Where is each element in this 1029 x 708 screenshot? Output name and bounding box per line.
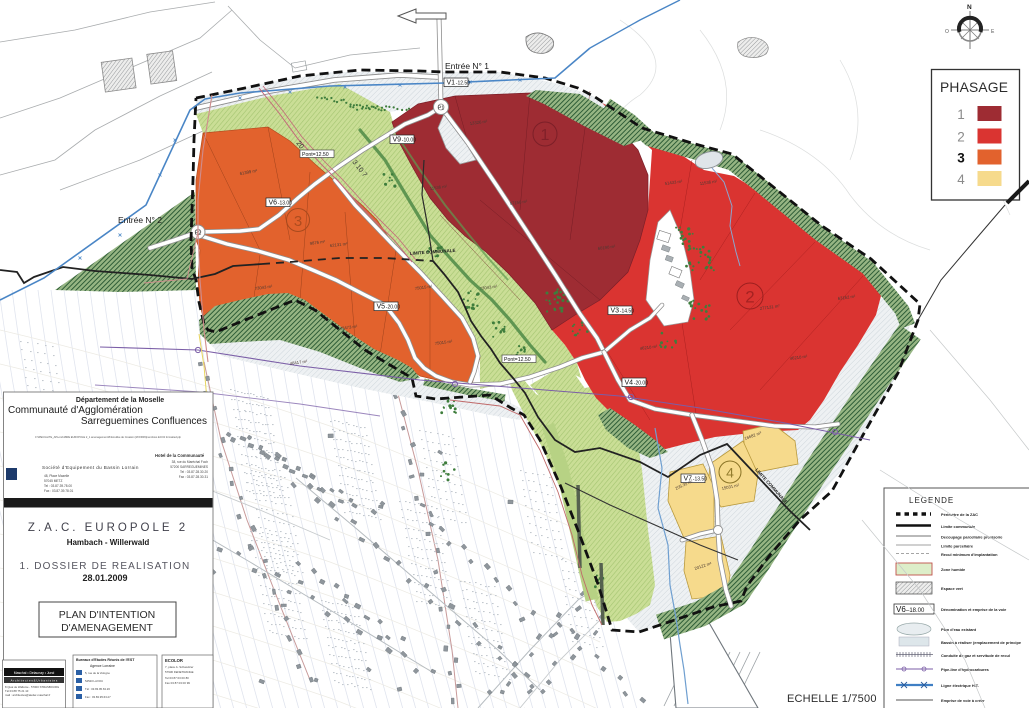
svg-text:Agence Lorraine: Agence Lorraine [90, 664, 115, 668]
svg-text:Entrée N° 1: Entrée N° 1 [445, 61, 489, 71]
svg-text:O: O [945, 29, 949, 35]
svg-text:Emprise de voie à créer: Emprise de voie à créer [941, 698, 985, 703]
svg-text:Fax 03 87 03 00 99: Fax 03 87 03 00 99 [165, 681, 190, 685]
svg-text:Tel 03 87 03 00 80: Tel 03 87 03 00 80 [165, 676, 189, 680]
svg-text:2: 2 [745, 288, 754, 307]
svg-text:N: N [967, 4, 972, 11]
svg-text:Entrée N° 2: Entrée N° 2 [118, 215, 162, 225]
svg-text:ECHELLE 1/7500: ECHELLE 1/7500 [787, 693, 877, 705]
svg-text:Maschal • Delaunay • Jund: Maschal • Delaunay • Jund [14, 671, 55, 675]
svg-text:57930 FENETRANGE: 57930 FENETRANGE [165, 670, 194, 674]
svg-text:38, rue du Maréchal Foch: 38, rue du Maréchal Foch [172, 460, 209, 464]
svg-text:-13.00: -13.00 [278, 200, 292, 206]
svg-text:28.01.2009: 28.01.2009 [82, 573, 127, 583]
svg-text:4: 4 [726, 465, 734, 481]
svg-text:Conduite de gaz et servitude d: Conduite de gaz et servitude de recul [941, 653, 1010, 658]
svg-text:Limite parcellaire: Limite parcellaire [941, 544, 974, 549]
svg-text:Bureaux d'Etudes Réunis de l'E: Bureaux d'Etudes Réunis de l'EST [76, 658, 135, 662]
svg-text:PLAN D'INTENTION: PLAN D'INTENTION [59, 609, 156, 621]
svg-text:57200 SARREGUEMINES: 57200 SARREGUEMINES [170, 465, 208, 469]
svg-text:3: 3 [957, 151, 965, 166]
svg-text:PHASAGE: PHASAGE [940, 80, 1008, 95]
svg-text:-13.50: -13.50 [693, 476, 707, 482]
svg-text:Département de la Moselle: Département de la Moselle [76, 397, 164, 404]
svg-text:V4: V4 [625, 380, 634, 387]
svg-text:Dénomination et emprise de la: Dénomination et emprise de la voie [941, 607, 1007, 612]
svg-text:A r c h i t e c t e s & U: A r c h i t e c t e s & U r b a n i s t … [11, 679, 58, 683]
svg-text:Fax : 03.87.28.30.31: Fax : 03.87.28.30.31 [179, 475, 208, 479]
svg-text:Tél : 03.83.95.63.26: Tél : 03.83.95.63.26 [85, 687, 110, 691]
svg-text:Tel : 03.87.39.78.00: Tel : 03.87.39.78.00 [44, 484, 72, 488]
svg-text:Société d'Equipement du Bassin: Société d'Equipement du Bassin Lorrain [42, 465, 139, 470]
svg-text:0 SPECIALITE_APLomb18RE EUROPO: 0 SPECIALITE_APLomb18RE EUROPOLE 2_1 ame… [35, 435, 181, 439]
svg-text:Hotel de la Communauté: Hotel de la Communauté [155, 453, 205, 458]
svg-text:V5: V5 [377, 304, 386, 311]
svg-text:Bassin à réaliser (emplacement: Bassin à réaliser (emplacement de princi… [941, 640, 1022, 645]
svg-text:Espace vert: Espace vert [941, 586, 964, 591]
svg-text:Fax : 03.87.39.78.01: Fax : 03.87.39.78.01 [44, 489, 73, 493]
svg-text:48, Place Mazelle: 48, Place Mazelle [44, 474, 69, 478]
svg-text:-20.00: -20.00 [634, 380, 648, 386]
svg-text:Ligne électrique H.T.: Ligne électrique H.T. [941, 683, 979, 688]
svg-text:7, place A. Schweitzer: 7, place A. Schweitzer [165, 665, 193, 669]
svg-text:Decoupage parcellaire provisoi: Decoupage parcellaire provisoire [941, 535, 1003, 540]
svg-text:-14.50: -14.50 [620, 308, 634, 314]
svg-text:1: 1 [541, 127, 550, 144]
svg-text:-12.50: -12.50 [456, 80, 470, 86]
svg-text:Communauté d'Agglomération: Communauté d'Agglomération [8, 405, 143, 416]
svg-text:3: 3 [294, 213, 302, 230]
svg-text:V9: V9 [393, 137, 402, 144]
svg-text:V6: V6 [896, 605, 906, 614]
svg-text:Sarreguemines Confluences: Sarreguemines Confluences [81, 416, 207, 427]
svg-text:ECOLOR: ECOLOR [165, 658, 183, 663]
svg-text:Z.A.C. EUROPOLE 2: Z.A.C. EUROPOLE 2 [28, 522, 188, 534]
svg-text:Fax : 03.83.95.63.27: Fax : 03.83.95.63.27 [85, 695, 111, 699]
svg-text:Périmètre de la ZAC: Périmètre de la ZAC [941, 512, 978, 517]
svg-text:1: 1 [957, 107, 965, 122]
svg-text:5, rue de la Vologne: 5, rue de la Vologne [85, 671, 110, 675]
svg-text:-20.00: -20.00 [386, 304, 400, 310]
svg-text:4: 4 [957, 172, 965, 187]
svg-text:LEGENDE: LEGENDE [909, 496, 954, 505]
svg-text:57045 METZ: 57045 METZ [44, 479, 62, 483]
svg-text:Hambach - Willerwald: Hambach - Willerwald [67, 538, 150, 547]
svg-text:D'AMENAGEMENT: D'AMENAGEMENT [61, 622, 153, 634]
svg-text:Pipe-line d'hydrocarbures: Pipe-line d'hydrocarbures [941, 667, 989, 672]
svg-text:mail : architectes@atelier-mas: mail : architectes@atelier-maschal.fr [5, 693, 50, 697]
svg-text:54520 LAXOU: 54520 LAXOU [85, 679, 103, 683]
svg-text:V6: V6 [269, 200, 278, 207]
svg-text:V3: V3 [611, 308, 620, 315]
svg-text:P1: P1 [438, 106, 445, 112]
svg-text:–18.00: –18.00 [906, 608, 925, 614]
svg-text:Recul minimum d'implantation: Recul minimum d'implantation [941, 552, 998, 557]
svg-text:V1: V1 [447, 80, 456, 87]
svg-text:2: 2 [957, 130, 965, 145]
svg-text:Tel : 03.87.28.30.20: Tel : 03.87.28.30.20 [180, 470, 208, 474]
svg-text:Pont=12.50: Pont=12.50 [504, 357, 531, 363]
svg-text:1. DOSSIER DE REALISATION: 1. DOSSIER DE REALISATION [20, 561, 191, 572]
svg-text:Pont=12.50: Pont=12.50 [302, 152, 329, 158]
svg-text:-10.00: -10.00 [402, 137, 416, 143]
svg-text:Zone humide: Zone humide [941, 567, 966, 572]
